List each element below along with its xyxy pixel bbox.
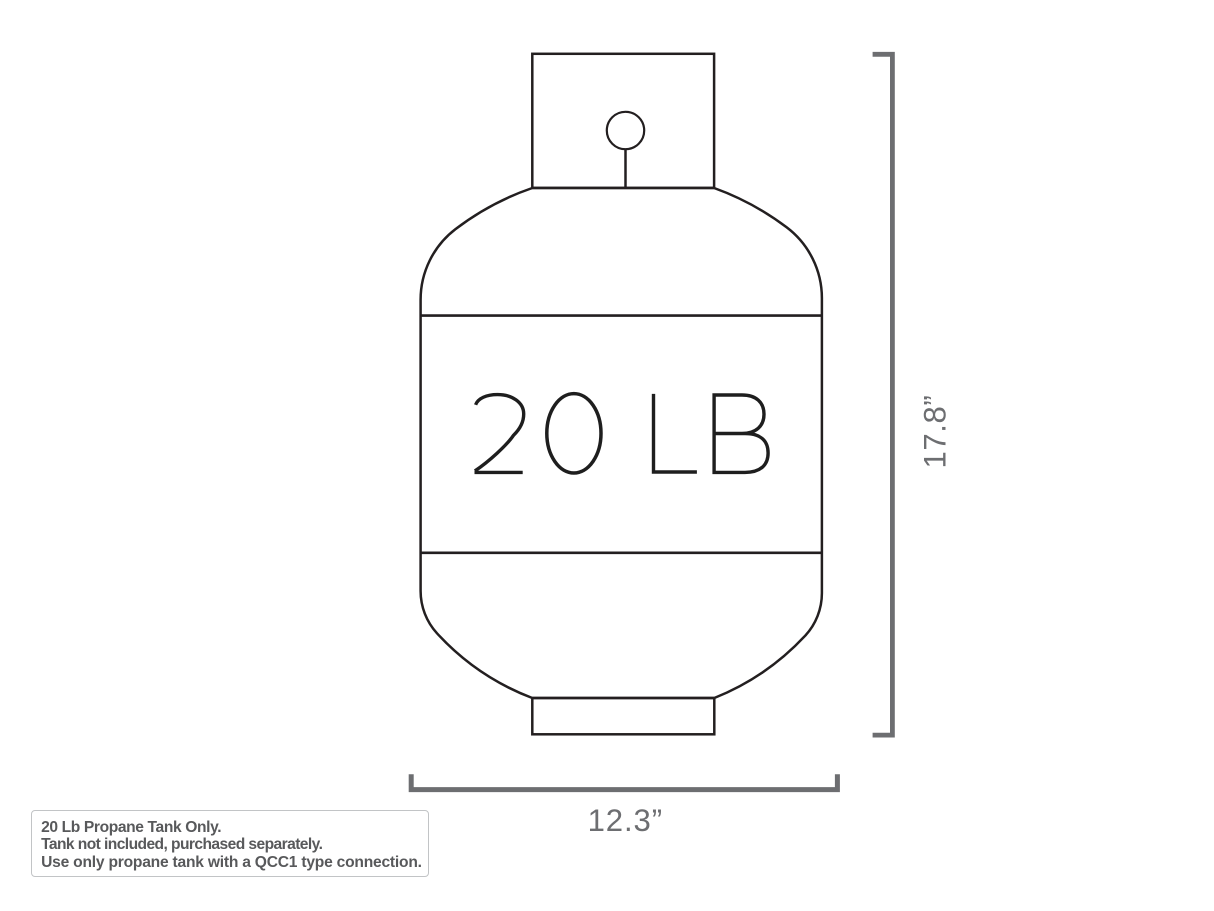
svg-text:17.8”: 17.8” [918, 395, 953, 469]
svg-text:12.3”: 12.3” [588, 803, 663, 838]
